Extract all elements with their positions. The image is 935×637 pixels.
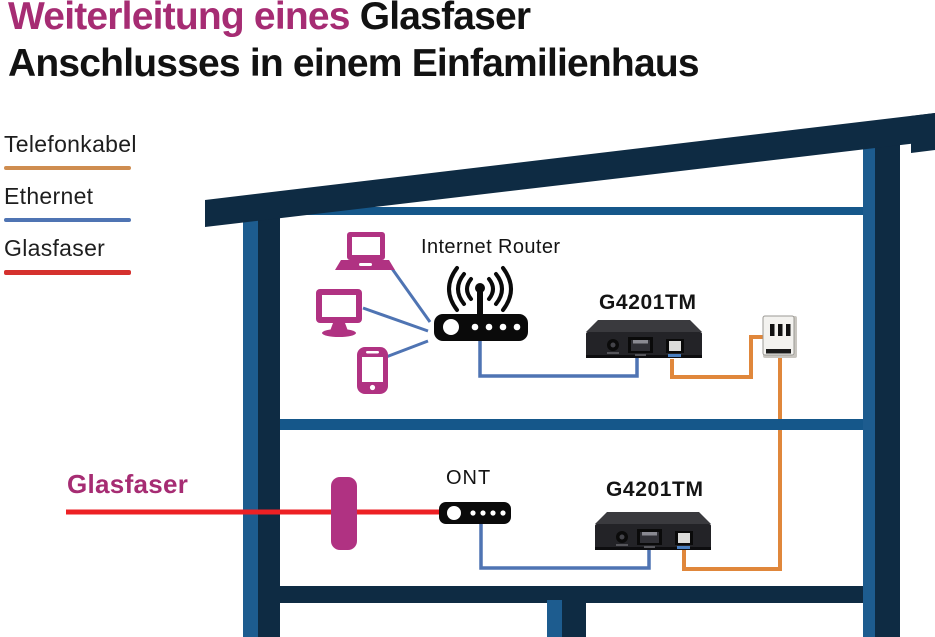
- house-diagram: [0, 0, 935, 637]
- wifi-router-icon: [434, 268, 528, 341]
- basement-post: [562, 600, 586, 637]
- house-frame: [250, 207, 890, 637]
- left-wall: [243, 210, 280, 637]
- ont-device: [439, 502, 511, 524]
- ont-label: ONT: [446, 467, 491, 490]
- g4201tm-lower-label: G4201TM: [606, 478, 704, 502]
- g4201tm-extender-lower: [595, 512, 711, 550]
- g4201tm-extender-upper: [586, 320, 702, 358]
- lan-client-links: [363, 263, 430, 357]
- right-wall: [863, 128, 900, 637]
- internet-router-label: Internet Router: [421, 236, 560, 259]
- glasfaser-entry-label: Glasfaser: [67, 469, 188, 500]
- tae-wall-socket-icon: [763, 316, 797, 358]
- smartphone-icon: [357, 347, 388, 394]
- floor-divider-beam: [250, 419, 875, 430]
- g4201tm-upper-label: G4201TM: [599, 291, 697, 315]
- laptop-icon: [335, 232, 395, 270]
- infographic-canvas: Weiterleitung eines Glasfaser Anschlusse…: [0, 0, 935, 637]
- monitor-icon: [316, 289, 362, 337]
- basement-post: [547, 600, 562, 637]
- fiber-wall-bushing: [331, 477, 357, 550]
